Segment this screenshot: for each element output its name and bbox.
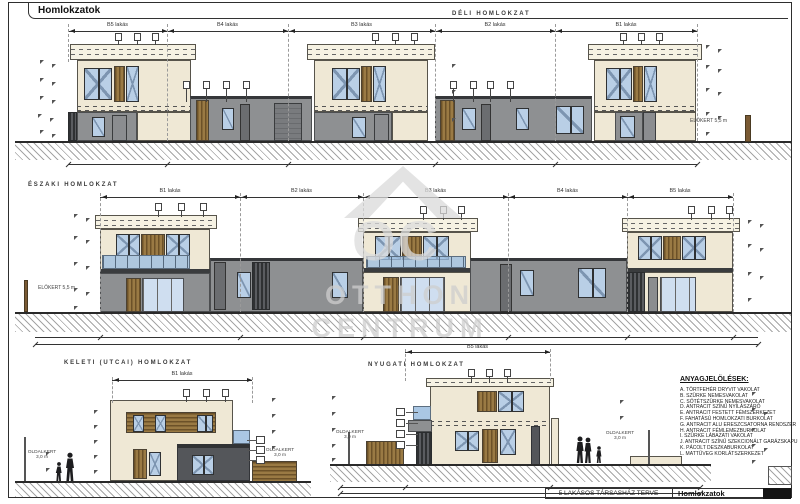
roof-vent-icon [178, 203, 185, 211]
level-marker-icon [52, 64, 56, 68]
level-marker-icon [452, 64, 456, 68]
shape [596, 450, 601, 463]
level-marker-icon [332, 428, 336, 432]
win [462, 108, 476, 130]
dim-arrow [405, 350, 412, 354]
level-marker-icon [764, 412, 768, 416]
roof-vent-stem [225, 397, 226, 402]
level-marker-icon [752, 444, 756, 448]
roof-vent-stem [137, 41, 138, 45]
shape [597, 446, 601, 450]
level-marker-icon [706, 112, 710, 116]
shape [578, 437, 583, 442]
roof-vent-icon [507, 81, 514, 89]
east-ground [15, 481, 311, 497]
level-marker-icon [74, 288, 78, 292]
leader-line [406, 434, 418, 435]
level-marker-icon [718, 69, 722, 73]
shape [67, 453, 72, 458]
front-yard-label: ELŐKERT 5,5 m [38, 285, 75, 291]
dim-arrow [435, 29, 442, 33]
win [222, 108, 234, 130]
level-marker-icon [748, 298, 752, 302]
winX [682, 236, 706, 260]
roof-vent-stem [659, 41, 660, 45]
winX [192, 455, 214, 475]
dim-arrow [545, 350, 552, 354]
roof-vent-icon [134, 33, 141, 41]
leader-line [247, 440, 257, 441]
door [643, 112, 656, 141]
roof-vent-icon [620, 33, 627, 41]
roof-vent-icon [458, 206, 465, 214]
win [92, 117, 105, 137]
level-marker-icon [752, 392, 756, 396]
leader-line [406, 412, 418, 413]
boundary-post [648, 430, 650, 465]
door [374, 114, 389, 141]
roof-vent-icon [487, 81, 494, 89]
level-marker-icon [760, 276, 764, 280]
winX [84, 68, 112, 100]
dim-label-unit: B4 lakás [508, 188, 627, 194]
dim-label-unit: B5 lakás [627, 188, 733, 194]
winX [133, 415, 144, 432]
roof-vent-icon [222, 389, 229, 397]
roof-vent-icon [708, 206, 715, 214]
fband [594, 106, 696, 111]
roof-vent-stem [423, 214, 424, 220]
roof-vent-icon [450, 81, 457, 89]
glass-panel [413, 406, 431, 420]
dim-arrow [247, 378, 254, 382]
level-marker-icon [74, 214, 78, 218]
dim-label-unit: B3 lakás [288, 22, 435, 28]
dim-arrow [112, 378, 119, 382]
winX [166, 234, 190, 256]
leader-line [406, 445, 418, 446]
level-marker-icon [40, 96, 44, 100]
slatD [68, 112, 77, 141]
roof-vent-icon [468, 369, 475, 377]
wallC [137, 112, 191, 141]
level-marker-icon [272, 414, 276, 418]
glass-panel [233, 430, 250, 444]
level-marker-icon [50, 118, 54, 122]
side-yard-label: OLDALKERT 3,0 m [604, 431, 636, 441]
doorD [240, 104, 250, 141]
sheet-tab-title: Homlokzatok [38, 5, 100, 16]
roof-vent-icon [155, 203, 162, 211]
roof-vent-stem [414, 41, 415, 45]
roof-vent-icon [243, 81, 250, 89]
level-marker-icon [332, 444, 336, 448]
roof-vent-stem [623, 41, 624, 45]
roof-vent-icon [470, 81, 477, 89]
side-yard-label: OLDALKERT 3,0 m [264, 448, 296, 458]
level-marker-icon [452, 118, 456, 122]
extension-line [288, 24, 289, 141]
extension-line [167, 24, 168, 141]
extension-line [627, 193, 628, 312]
wallD [531, 426, 540, 465]
roof-vent-icon [183, 389, 190, 397]
west-ground [330, 464, 711, 482]
extension-line [405, 349, 406, 381]
dim-arrow [288, 29, 295, 33]
roof-vent-stem [711, 214, 712, 220]
level-marker-icon [748, 220, 752, 224]
extension-line [435, 24, 436, 141]
dim-arrow [508, 195, 515, 199]
dimension-line [112, 380, 252, 381]
wood [663, 236, 681, 260]
wallG [408, 420, 432, 432]
shape [576, 437, 601, 464]
level-marker-icon [706, 132, 710, 136]
fence-post [24, 280, 28, 312]
door [112, 115, 127, 141]
winX [500, 429, 516, 455]
north-ground [15, 312, 791, 332]
roof-vent-icon [200, 203, 207, 211]
dim-arrow [692, 29, 699, 33]
shape [56, 453, 74, 481]
level-marker-icon [752, 408, 756, 412]
winX [126, 66, 139, 102]
roof-vent-stem [181, 211, 182, 217]
roof-vent-stem [443, 214, 444, 220]
glass-balcony-rail [102, 255, 190, 269]
level-marker-icon [748, 244, 752, 248]
dimension-line [405, 352, 550, 353]
roof-vent-stem [471, 377, 472, 383]
dim-arrow [728, 195, 735, 199]
level-marker-icon [718, 92, 722, 96]
dim-arrow [100, 195, 107, 199]
winX [498, 391, 524, 412]
sliding-glass-door [400, 277, 445, 312]
wood-fence [252, 461, 297, 483]
roof-vent-icon [203, 389, 210, 397]
dimension-line [100, 197, 733, 198]
roof-vent-icon [726, 206, 733, 214]
level-marker-icon [332, 458, 336, 462]
winX [644, 66, 657, 102]
roof-vent-stem [203, 211, 204, 217]
south-ground [15, 141, 791, 160]
win [332, 272, 348, 298]
level-marker-icon [332, 412, 336, 416]
level-marker-icon [86, 218, 90, 222]
level-marker-icon [94, 410, 98, 414]
level-marker-icon [46, 452, 50, 456]
level-marker-icon [752, 460, 756, 464]
level-marker-icon [718, 49, 722, 53]
title-block-mark [763, 488, 791, 499]
roof-vent-icon [203, 81, 210, 89]
door [648, 277, 658, 312]
win [556, 106, 584, 134]
west-elevation-title: NYUGATI HOMLOKZAT [368, 362, 465, 368]
dim-arrow [363, 195, 370, 199]
dim-arrow [555, 29, 562, 33]
roof-vent-icon [115, 33, 122, 41]
annotation-box [396, 419, 405, 427]
annotation-box [256, 456, 265, 464]
winX [638, 236, 662, 260]
side-yard-label: OLDALKERT 3,0 m [334, 430, 366, 440]
legend-list: A. TÖRTFEHÉR DRYVIT VAKOLAT B. SZÜRKE NE… [680, 388, 795, 458]
winX [373, 66, 386, 102]
glass-balcony-rail [366, 256, 466, 268]
roof-vent-stem [473, 89, 474, 102]
dim-label-unit: B2 lakás [435, 22, 555, 28]
level-marker-icon [272, 430, 276, 434]
title-tab-line [28, 2, 788, 19]
wood [114, 66, 125, 102]
level-marker-icon [94, 440, 98, 444]
level-marker-icon [760, 224, 764, 228]
extension-line [697, 24, 698, 141]
level-marker-icon [332, 396, 336, 400]
slatD [252, 262, 270, 310]
dim-label-unit: B1 lakás [100, 188, 240, 194]
roof-vent-icon [152, 33, 159, 41]
dim-arrow [240, 195, 247, 199]
level-marker-icon [38, 114, 42, 118]
entry-door [416, 432, 432, 465]
roof-vent-stem [158, 211, 159, 217]
extension-line [100, 193, 101, 312]
level-marker-icon [706, 45, 710, 49]
wood [126, 278, 141, 312]
roof-vent-stem [510, 89, 511, 102]
winX [116, 234, 140, 256]
level-marker-icon [760, 248, 764, 252]
roof-vent-stem [118, 41, 119, 45]
fband [77, 106, 191, 111]
roof-vent-stem [641, 41, 642, 45]
roof-vent-icon [420, 206, 427, 214]
shape [586, 438, 591, 443]
wood [477, 391, 497, 412]
roof-vent-icon [411, 33, 418, 41]
winX [606, 68, 632, 100]
level-marker-icon [86, 292, 90, 296]
roof-vent-stem [375, 41, 376, 45]
abs [672, 488, 673, 499]
dimension-line [35, 344, 758, 345]
legend-item: L. MATTÜVEG KORLÁTSZERKEZET [680, 452, 795, 458]
roof-vent-stem [453, 89, 454, 102]
extension-line [555, 24, 556, 141]
roof-vent-icon [656, 33, 663, 41]
annotation-box [256, 436, 265, 444]
level-marker-icon [40, 130, 44, 134]
winX [332, 68, 360, 100]
level-marker-icon [748, 272, 752, 276]
fband [314, 106, 428, 111]
win [516, 108, 529, 130]
win [578, 268, 606, 298]
south-elevation-title: DÉLI HOMLOKZAT [452, 11, 530, 17]
house-b5-lower [77, 112, 137, 141]
level-marker-icon [272, 446, 276, 450]
east-elevation-title: KELETI (UTCAI) HOMLOKZAT [64, 360, 192, 366]
roof-vent-stem [206, 89, 207, 102]
extension-line [363, 193, 364, 312]
roof-vent-icon [372, 33, 379, 41]
roof-vent-stem [691, 214, 692, 220]
wood [133, 449, 147, 479]
level-marker-icon [52, 134, 56, 138]
winX [155, 415, 166, 432]
extension-line [240, 193, 241, 312]
roof-vent-stem [186, 89, 187, 102]
level-marker-icon [272, 398, 276, 402]
dim-label-unit: B3 lakás [363, 188, 508, 194]
level-marker-icon [40, 60, 44, 64]
extension-line [733, 193, 734, 312]
level-marker-icon [94, 455, 98, 459]
pillar [551, 418, 559, 465]
dim-label-unit: B1 lakás [112, 371, 252, 377]
wood [383, 277, 399, 312]
roof-vent-icon [688, 206, 695, 214]
leader-line [406, 423, 418, 424]
dim-label-unit: B5 lakás [405, 344, 550, 350]
roof-vent-stem [246, 89, 247, 102]
wood [141, 234, 165, 256]
roof-vent-icon [486, 369, 493, 377]
leader-line [247, 450, 257, 451]
level-marker-icon [620, 416, 624, 420]
roof-vent-stem [226, 89, 227, 102]
wallC [392, 112, 428, 141]
level-marker-icon [52, 82, 56, 86]
roof-vent-stem [490, 89, 491, 102]
level-marker-icon [706, 65, 710, 69]
shape [56, 467, 62, 482]
sliding-glass-door [142, 278, 184, 312]
roof-vent-icon [504, 369, 511, 377]
wood [196, 100, 209, 141]
roof-vent-icon [183, 81, 190, 89]
wood [482, 429, 498, 463]
level-marker-icon [46, 468, 50, 472]
roof-vent-stem [206, 397, 207, 402]
legend-title: ANYAGJELÖLÉSEK: [680, 376, 749, 383]
dim-arrow [627, 195, 634, 199]
wood [633, 66, 643, 102]
level-marker-icon [94, 470, 98, 474]
fence-post [745, 115, 751, 142]
side-yard-label: OLDALKERT 3,0 m [26, 450, 58, 460]
dim-label-unit: B5 lakás [68, 22, 167, 28]
level-marker-icon [752, 428, 756, 432]
annotation-box [396, 408, 405, 416]
wood [361, 66, 372, 102]
level-marker-icon [706, 88, 710, 92]
roof-vent-stem [729, 214, 730, 220]
annotation-box [256, 446, 265, 454]
roof-vent-stem [186, 397, 187, 402]
drawing-sheet: Homlokzatok OC OTTHON CENTRUM DÉLI HOMLO… [0, 0, 800, 504]
sliding-glass-door [660, 277, 696, 312]
house-b3-eave [307, 44, 435, 60]
dim-label-unit: B4 lakás [167, 22, 288, 28]
win [352, 117, 366, 138]
leader-line [247, 460, 257, 461]
level-marker-icon [718, 116, 722, 120]
annotation-box [396, 430, 405, 438]
win [620, 116, 635, 138]
roof-vent-stem [395, 41, 396, 45]
dimension-line [68, 164, 697, 165]
level-marker-icon [86, 240, 90, 244]
level-marker-icon [74, 306, 78, 310]
win [197, 415, 213, 432]
roof-vent-stem [507, 377, 508, 383]
hatch-swatch [768, 466, 792, 485]
level-marker-icon [40, 78, 44, 82]
roof-vent-icon [638, 33, 645, 41]
nhouse-b1-eave [95, 215, 217, 229]
level-marker-icon [764, 448, 768, 452]
doorD [500, 264, 512, 312]
level-marker-icon [94, 425, 98, 429]
dimension-line [35, 337, 758, 338]
doorD [481, 104, 491, 141]
house-b1-eave [588, 44, 702, 60]
roof-vent-icon [392, 33, 399, 41]
dim-arrow [68, 29, 75, 33]
project-title: 5 LAKÁSOS TÁRSASHÁZ TERVE [545, 490, 672, 497]
slatD [627, 272, 645, 312]
dim-label-unit: B1 lakás [555, 22, 697, 28]
house-b5-eave [70, 44, 196, 60]
roof-vent-stem [461, 214, 462, 220]
dim-arrow [167, 29, 174, 33]
nhouse-b3-eave [358, 218, 478, 232]
extension-line [508, 193, 509, 312]
shape [57, 462, 61, 466]
nhouse-b5-eave [622, 218, 740, 232]
shape [585, 443, 592, 463]
win [520, 270, 534, 296]
level-marker-icon [74, 262, 78, 266]
winX [455, 431, 479, 451]
level-marker-icon [86, 266, 90, 270]
annotation-box [396, 441, 405, 449]
dim-label-unit: B2 lakás [240, 188, 363, 194]
extension-line [550, 349, 551, 381]
shape [66, 459, 74, 482]
roof-vent-stem [489, 377, 490, 383]
level-marker-icon [74, 236, 78, 240]
roof-vent-icon [440, 206, 447, 214]
level-marker-icon [620, 400, 624, 404]
doorD [214, 262, 226, 310]
roof-vent-stem [155, 41, 156, 45]
shape [576, 442, 583, 463]
level-marker-icon [52, 100, 56, 104]
roof-vent-icon [223, 81, 230, 89]
winX [149, 452, 161, 476]
